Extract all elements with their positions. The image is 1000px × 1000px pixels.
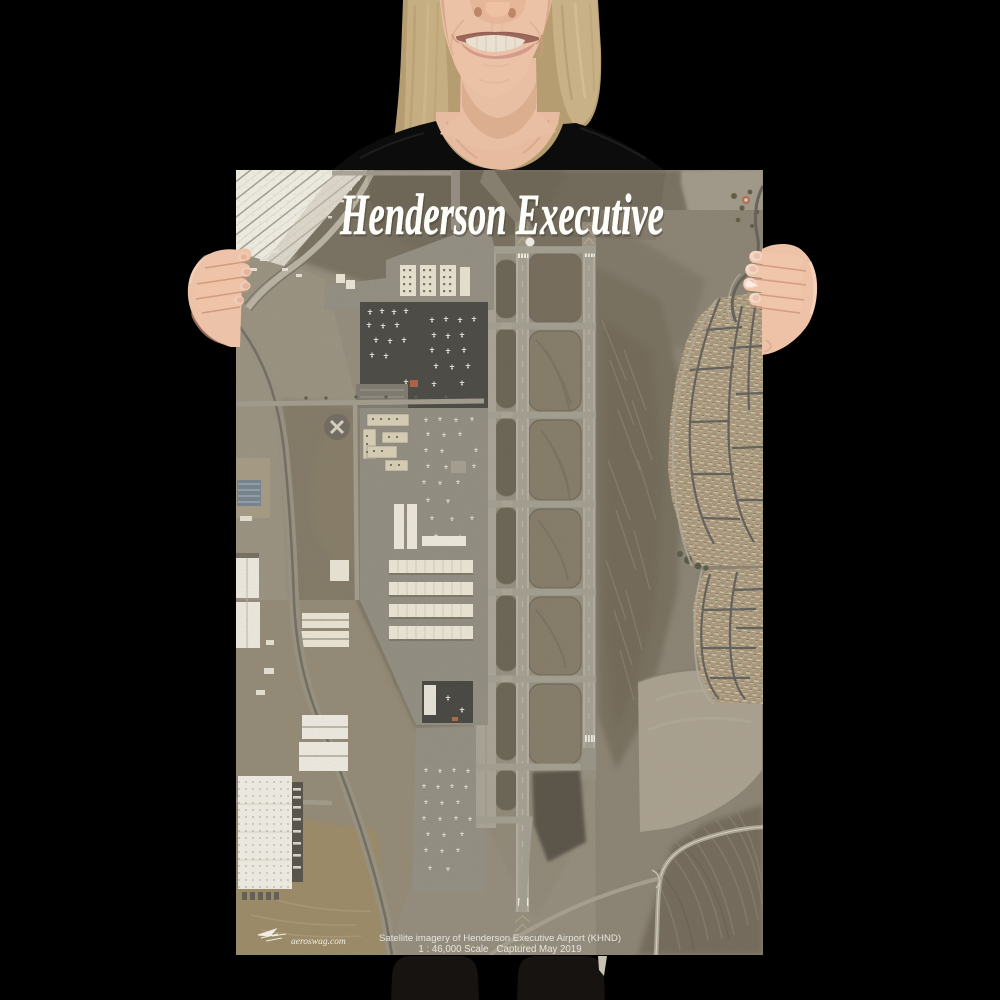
svg-text:Satellite imagery of Henderson: Satellite imagery of Henderson Executive… [379, 933, 621, 944]
svg-text:aeroswag.com: aeroswag.com [291, 937, 346, 947]
svg-text:Henderson Executive: Henderson Executive [339, 184, 663, 247]
svg-text:1 : 46,000 Scale Captured Ma: 1 : 46,000 Scale Captured May 2019 [418, 944, 581, 955]
